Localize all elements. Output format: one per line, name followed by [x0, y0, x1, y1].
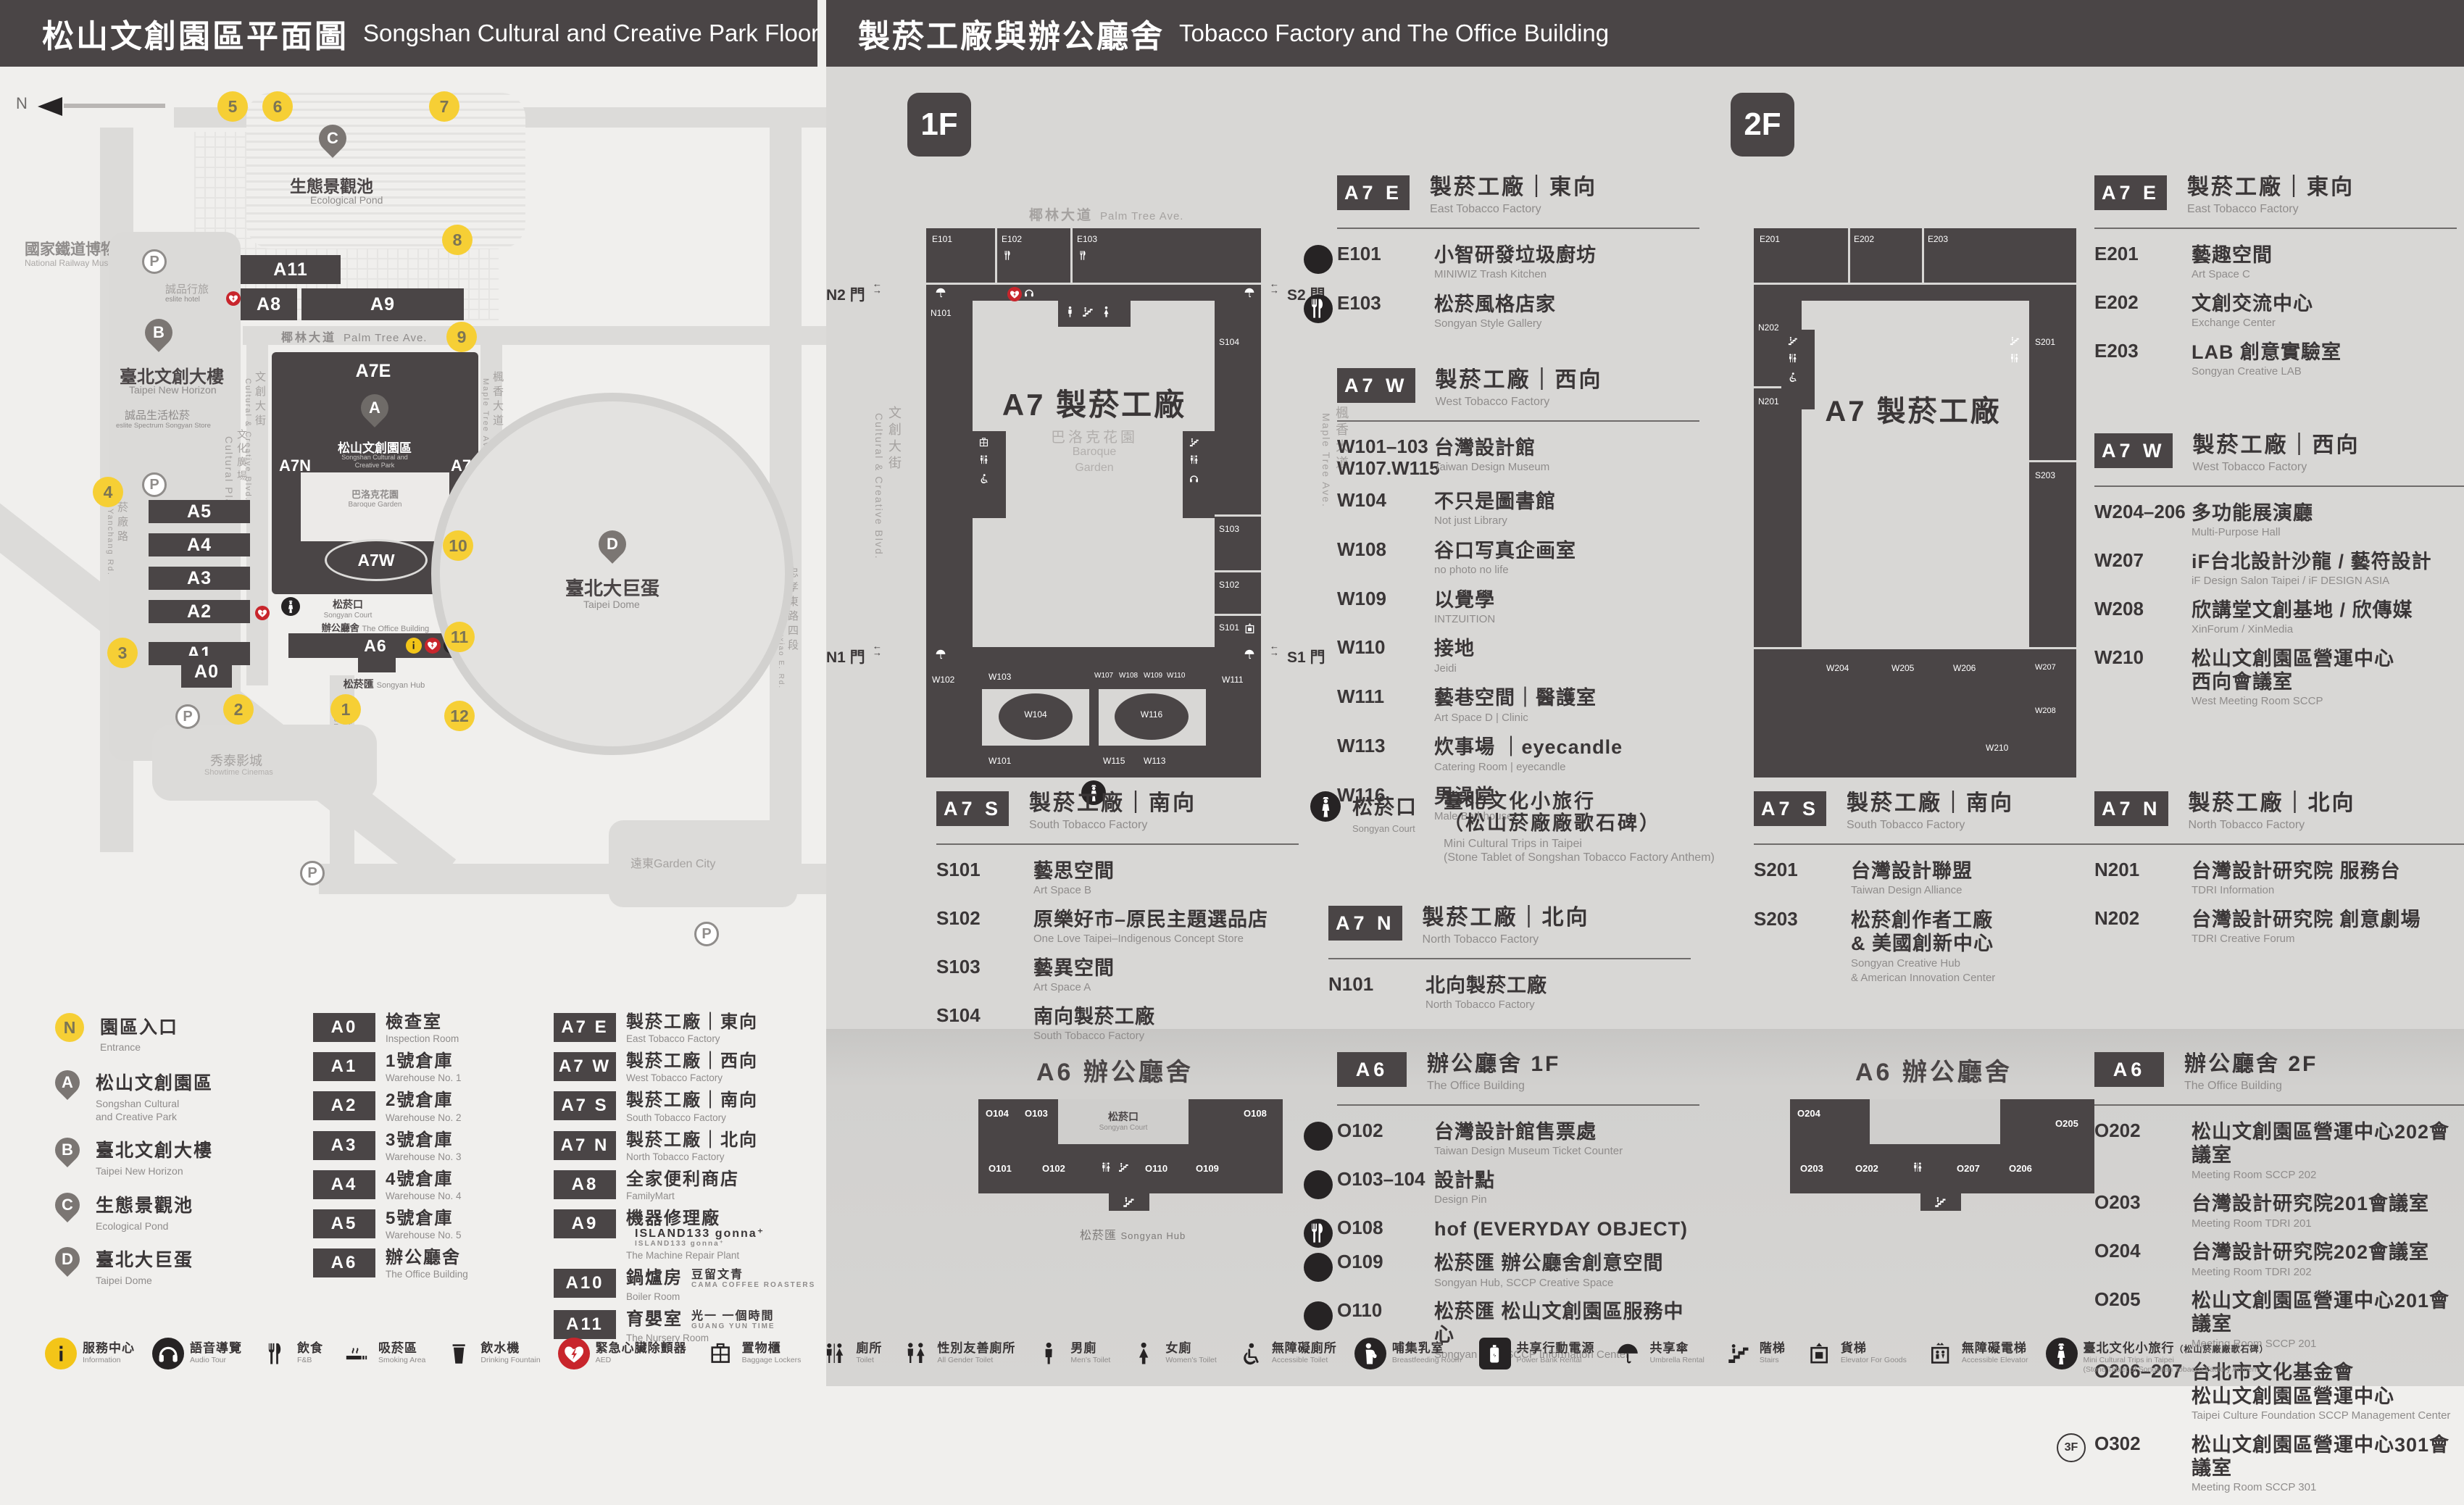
info-icon — [406, 638, 422, 654]
room-row: W109 以覺學INTZUITION — [1337, 588, 1699, 628]
section-2f-a7s: A7 S 製菸工廠｜南向 South Tobacco Factory S201 … — [1754, 791, 2094, 996]
right-title-en: Tobacco Factory and The Office Building — [1179, 20, 1609, 47]
building-legend-row: A7 N 製菸工廠｜北向 North Tobacco Factory — [499, 1131, 826, 1162]
legend-zh: 製菸工廠｜西向 — [626, 1052, 767, 1070]
room-row: S201 台灣設計聯盟Taiwan Design Alliance — [1754, 859, 2094, 899]
stairs-icon — [1081, 306, 1094, 318]
service-zh: 飲水機 — [480, 1338, 540, 1356]
service-item: 飲食 F&B — [259, 1338, 323, 1375]
room-label: N202 — [1758, 322, 1779, 333]
room-label: W207 — [2035, 663, 2056, 672]
legend-icon — [284, 1055, 306, 1077]
north-corridor-2f — [1754, 285, 2076, 301]
service-item: 無障礙電梯 Accessible Elevator — [1924, 1338, 2028, 1375]
cultural-blvd-label: 文創大街Cultural & Creative Blvd. — [244, 371, 267, 501]
room-label: W104 — [999, 709, 1073, 720]
divider — [1754, 843, 2094, 845]
new-horizon-label-en: Taipei New Horizon — [129, 384, 217, 396]
room-row: S104 南向製菸工廠South Tobacco Factory — [936, 1005, 1299, 1043]
garden-city-label: 遠東Garden City — [630, 854, 715, 871]
room-row: W110 接地Jeidi — [1337, 637, 1699, 676]
service-icon — [558, 1338, 590, 1369]
service-item: 吸菸區 Smoking Area — [341, 1338, 425, 1375]
legend-en: The Office Building — [386, 1269, 468, 1280]
room-label: N201 — [1758, 396, 1779, 407]
legend-icon — [525, 1173, 546, 1195]
legend-badge: A1 — [313, 1052, 375, 1081]
showtime-label-en: Showtime Cinemas — [204, 768, 273, 777]
room-row: S102 原樂好市–原民主題選品店One Love Taipei–Indigen… — [936, 908, 1299, 946]
room-label: W210 — [1986, 743, 2008, 753]
building-a4: A4 — [149, 533, 250, 556]
room-row: O203 台灣設計研究院201會議室Meeting Room TDRI 201 — [2094, 1192, 2464, 1230]
room-label: W101 — [988, 756, 1011, 766]
entrance-7: 7 — [429, 91, 459, 122]
legend-icon — [474, 1016, 496, 1038]
a6-stairs-stub — [358, 658, 396, 672]
legend-en: South Tobacco Factory — [626, 1112, 767, 1123]
legend-zh: 製菸工廠｜北向 — [626, 1131, 767, 1149]
entrance-4: 4 — [93, 477, 123, 507]
room-row: S101 藝思空間Art Space B — [936, 859, 1299, 898]
palm-ave-label: 椰林大道Palm Tree Ave. — [281, 328, 427, 345]
service-en: Stairs — [1760, 1356, 1786, 1365]
legend-badge: A7 N — [554, 1131, 616, 1160]
a7s-wing — [1215, 301, 1261, 647]
room-row: E202 文創交流中心Exchange Center — [2094, 292, 2457, 330]
room-label: W116 — [1115, 709, 1189, 720]
parking-icon: P — [694, 922, 719, 946]
pin-label-en: Taipei Dome — [96, 1274, 193, 1287]
room-label: E203 — [1928, 234, 1948, 244]
room-list: S201 台灣設計聯盟Taiwan Design Alliance S203 松… — [1754, 859, 2094, 985]
service-en: Power Bank Rental — [1517, 1356, 1595, 1365]
room-icon — [1304, 1122, 1333, 1151]
compass-arrow-icon — [38, 97, 62, 116]
legend-zh: 機器修理廠ISLAND133 gonna⁺ISLAND133 gonna⁺ — [626, 1209, 826, 1248]
room-row: O103–104 設計點Design Pin — [1337, 1169, 1699, 1207]
service-zh: 廁所 — [856, 1338, 882, 1356]
badge-a7n-2f: A7 N — [2094, 791, 2168, 826]
room-row: W111 藝巷空間｜醫護室Art Space D | Clinic — [1337, 686, 1699, 725]
court-item: 臺北文化小旅行 — [1444, 791, 1715, 813]
room-list: E101 小智研發垃圾廚坊MINIWIZ Trash Kitchen E103 … — [1337, 243, 1699, 332]
room-label: O101 — [988, 1163, 1012, 1174]
room-row: O202 松山文創園區營運中心202會議室Meeting Room SCCP 2… — [2094, 1120, 2464, 1182]
section-2f-a7n: A7 N 製菸工廠｜北向 North Tobacco Factory N201 … — [2094, 791, 2464, 956]
section-title: 辦公廳舍 1F — [1427, 1052, 1560, 1076]
park-map: N 國家鐵道博物館 National Railway Museum C 生態景觀… — [0, 67, 826, 993]
service-zh: 無障礙電梯 — [1962, 1338, 2028, 1356]
building-a0: A0 — [181, 656, 232, 688]
legend-badge: A9 — [554, 1209, 616, 1238]
section-title-en: The Office Building — [2184, 1080, 2318, 1093]
badge-a7s: A7 S — [936, 791, 1009, 826]
right-panel-header: 製菸工廠與辦公廳舍 Tobacco Factory and The Office… — [826, 0, 2464, 67]
legend-en: Warehouse No. 5 — [386, 1230, 462, 1241]
service-zh: 臺北文化小旅行（松山菸廠廠歌石碑） — [2084, 1338, 2269, 1356]
service-item: 服務中心 Information — [45, 1338, 135, 1375]
room-label: O204 — [1797, 1108, 1820, 1119]
room-label: S103 — [1219, 524, 1239, 534]
room-label: O110 — [1145, 1163, 1168, 1174]
parking-icon: P — [300, 861, 325, 885]
badge-a7n: A7 N — [1328, 906, 1402, 941]
legend-icons — [255, 1209, 306, 1212]
legend-zh: 製菸工廠｜東向 — [626, 1013, 767, 1031]
room-label: W113 — [1144, 756, 1165, 766]
pin-label-en: Taipei New Horizon — [96, 1164, 213, 1177]
a6-2f-plan-title: A6 辦公廳舍 — [1855, 1052, 2013, 1088]
service-en: Elevator For Goods — [1841, 1356, 1907, 1365]
building-legend-row: A4 4號倉庫 Warehouse No. 4 — [255, 1170, 499, 1201]
section-title: 製菸工廠｜東向 — [2187, 175, 2355, 199]
service-icon — [2046, 1338, 2078, 1369]
room-row: O108 hof (EVERYDAY OBJECT) — [1337, 1217, 1699, 1241]
room-label: W115 — [1103, 756, 1125, 766]
room-label: O108 — [1244, 1108, 1267, 1119]
room-label: N101 — [931, 308, 952, 318]
pond-label-en: Ecological Pond — [310, 194, 383, 206]
service-zh: 語音導覽 — [190, 1338, 242, 1356]
building-legend-row: A6 辦公廳舍 The Office Building — [255, 1248, 499, 1280]
a7n-wing — [926, 301, 973, 647]
service-zh: 共享行動電源 — [1517, 1338, 1595, 1356]
dome-label: 臺北大巨蛋 — [554, 574, 670, 601]
entrance-5: 5 — [217, 91, 248, 122]
room-label: W107 — [1094, 672, 1113, 680]
legend-en: The Machine Repair Plant — [626, 1250, 826, 1261]
service-zh: 吸菸區 — [378, 1338, 425, 1356]
pin-label: 松山文創園區 — [96, 1069, 213, 1095]
service-icon — [152, 1338, 184, 1369]
entrance-label-en: Entrance — [100, 1041, 178, 1053]
room-list: W101–103W107.W115 台灣設計館Taiwan Design Mus… — [1337, 436, 1699, 824]
legend-icons — [255, 1170, 306, 1173]
divider — [1337, 228, 1699, 229]
court-title-en: Songyan Court — [1352, 823, 1432, 834]
legend-badge: A7 S — [554, 1091, 616, 1120]
room-icon — [1304, 294, 1333, 323]
service-item: 緊急心臟除顫器 AED — [558, 1338, 687, 1375]
legend-en: North Tobacco Factory — [626, 1151, 767, 1162]
songyan-hub-label: 松菸匯 Songyan Hub — [1080, 1225, 1186, 1243]
legend-en: Warehouse No. 4 — [386, 1191, 462, 1201]
room-row: E103 松菸風格店家Songyan Style Gallery — [1337, 293, 1699, 332]
service-icon — [1234, 1338, 1266, 1369]
floor-1f-badge: 1F — [907, 93, 971, 157]
room-row: S103 藝異空間Art Space A — [936, 956, 1299, 995]
a6-1f-plan: 松菸口Songyan Court O104 O103 O108 O101 O10… — [964, 1091, 1297, 1264]
building-a9: A9 — [301, 288, 464, 320]
section-a6-2f: A6 辦公廳舍 2F The Office Building O202 松山文創… — [2094, 1052, 2464, 1505]
cultural-blvd-label-1f: 文創大街Cultural & Creative Blvd. — [873, 406, 904, 560]
badge-a7e: A7 E — [1337, 175, 1410, 210]
service-icon — [45, 1338, 77, 1369]
dome-label-en: Taipei Dome — [583, 599, 640, 610]
section-a6-1f: A6 辦公廳舍 1F The Office Building O102 台灣設計… — [1337, 1052, 1699, 1372]
room-label: W110 — [1167, 672, 1185, 680]
section-title-en: North Tobacco Factory — [1423, 933, 1590, 946]
north-corridor — [926, 285, 1261, 301]
service-en: Breastfeeding Room — [1392, 1356, 1462, 1365]
section-title-en: South Tobacco Factory — [1029, 819, 1196, 832]
service-item: 階梯 Stairs — [1722, 1338, 1786, 1375]
badge-a7s-2f: A7 S — [1754, 791, 1826, 826]
room-row: 3F O302 松山文創園區營運中心301會議室Meeting Room SCC… — [2094, 1433, 2464, 1495]
service-en: Baggage Lockers — [742, 1356, 802, 1365]
a7w-wing-2f — [1754, 647, 2076, 777]
eslite-hotel-label-en: eslite hotel — [165, 296, 200, 304]
section-title-en: The Office Building — [1427, 1080, 1560, 1093]
entrance-2: 2 — [223, 694, 254, 725]
room-row: E203 LAB 創意實驗室Songyan Creative LAB — [2094, 341, 2457, 379]
legend-icons — [499, 1013, 546, 1038]
room-label: O102 — [1042, 1163, 1065, 1174]
legend-zh: 1號倉庫 — [386, 1052, 462, 1070]
section-title-en: West Tobacco Factory — [1436, 396, 1603, 409]
legend-icons — [255, 1091, 306, 1116]
building-legend-col1: A0 檢查室 Inspection Room A1 1號倉庫 Warehouse… — [255, 1013, 499, 1288]
umbrella-icon — [935, 649, 946, 660]
showtime-block — [152, 725, 377, 801]
court-item-en2: (Stone Tablet of Songshan Tobacco Factor… — [1444, 851, 1715, 864]
entrance-3: 3 — [107, 638, 138, 668]
fnb-icon — [1002, 250, 1013, 261]
legend-icon — [525, 1212, 546, 1234]
building-legend-row: A0 檢查室 Inspection Room — [255, 1013, 499, 1044]
stairs-icon — [2009, 335, 2020, 346]
legend-icons — [499, 1131, 546, 1156]
room-list: E201 藝趣空間Art Space C E202 文創交流中心Exchange… — [2094, 243, 2457, 379]
a6-2f-plan: O204 O205 O203 O202 O207 O206 — [1776, 1091, 2109, 1264]
section-songyan-court: 松菸口 Songyan Court 臺北文化小旅行 （松山菸廠廠歌石碑） Min… — [1310, 791, 1716, 864]
legend-icon — [499, 1055, 521, 1077]
room-list: O202 松山文創園區營運中心202會議室Meeting Room SCCP 2… — [2094, 1120, 2464, 1495]
floor-prefix-badge: 3F — [2057, 1433, 2086, 1462]
service-icon — [341, 1338, 372, 1369]
service-icon — [818, 1338, 850, 1369]
legend-icon — [259, 1251, 280, 1273]
legend-zh: 3號倉庫 — [386, 1131, 462, 1149]
entrance-badge: N — [55, 1013, 84, 1042]
pin-icon: A — [50, 1065, 85, 1100]
legend-icons — [255, 1052, 306, 1077]
section-title: 製菸工廠｜南向 — [1847, 791, 2014, 815]
room-label: S101 — [1219, 622, 1239, 633]
entrance-label: 園區入口 — [100, 1013, 178, 1039]
room-label: O203 — [1800, 1163, 1823, 1174]
aed-icon — [255, 606, 270, 620]
service-icon — [259, 1338, 291, 1369]
room-row: S203 松菸創作者工廠& 美國創新中心Songyan Creative Hub… — [1754, 909, 2094, 985]
service-icon — [899, 1338, 931, 1369]
room-label: E202 — [1854, 234, 1874, 244]
section-2f-a7w: A7 W 製菸工廠｜西向 West Tobacco Factory W204–2… — [2094, 433, 2464, 719]
floor-plan-2f: E201 E202 E203 N202 N201 S201 S203 A7 製菸… — [1754, 156, 2102, 793]
badge-a7w-2f: A7 W — [2094, 433, 2173, 468]
room-list: O102 台灣設計館售票處Taiwan Design Museum Ticket… — [1337, 1120, 1699, 1362]
aed-icon — [1007, 287, 1022, 301]
room-label: O205 — [2055, 1118, 2078, 1129]
compass-n-label: N — [16, 94, 28, 112]
mens-toilet-icon — [1064, 306, 1076, 318]
legend-zh: 製菸工廠｜南向 — [626, 1091, 767, 1109]
toilet-icon — [1912, 1162, 1923, 1173]
service-item: 置物櫃 Baggage Lockers — [704, 1338, 802, 1375]
service-item: 廁所 Toilet — [818, 1338, 882, 1375]
service-zh: 置物櫃 — [742, 1338, 802, 1356]
stairs-icon — [1787, 335, 1798, 346]
toilet-icon — [1787, 353, 1798, 364]
eslite-hotel-label: 誠品行旅 — [165, 281, 209, 296]
entrance-11: 11 — [444, 622, 475, 652]
building-legend-col2: A7 E 製菸工廠｜東向 East Tobacco Factory A7 W 製… — [499, 1013, 826, 1351]
legend-icons — [499, 1310, 546, 1335]
room-row: E101 小智研發垃圾廚坊MINIWIZ Trash Kitchen — [1337, 243, 1699, 283]
service-en: Smoking Area — [378, 1356, 425, 1365]
baroque-garden-label: 巴洛克花園Baroque Garden — [330, 487, 420, 509]
room-list: N201 台灣設計研究院 服務台TDRI Information N202 台灣… — [2094, 859, 2464, 946]
gate-s2: ←→ — [1270, 280, 1279, 293]
service-item: 無障礙廁所 Accessible Toilet — [1234, 1338, 1337, 1375]
legend-icon — [525, 1313, 546, 1335]
legend-en: West Tobacco Factory — [626, 1072, 767, 1083]
service-en: Audio Tour — [190, 1356, 242, 1365]
room-label: O207 — [1957, 1163, 1980, 1174]
service-item: 貨梯 Elevator For Goods — [1803, 1338, 1907, 1375]
womens-toilet-icon — [1100, 306, 1112, 318]
stairs-icon — [1122, 1196, 1135, 1209]
service-en: Men's Toilet — [1070, 1356, 1110, 1365]
pin-legend-row: A 松山文創園區 Songshan Culturaland Creative P… — [55, 1069, 251, 1123]
building-legend-row: A8 全家便利商店 FamilyMart — [499, 1170, 826, 1201]
building-legend-row: A2 2號倉庫 Warehouse No. 2 — [255, 1091, 499, 1122]
badge-a6: A6 — [1337, 1052, 1407, 1087]
section-title-en: South Tobacco Factory — [1847, 819, 2014, 832]
legend-icon — [525, 1094, 546, 1116]
eslite-mall-label-en: eslite Spectrum Songyan Store — [116, 422, 211, 430]
section-title-en: North Tobacco Factory — [2189, 819, 2356, 832]
eslite-mall-label: 誠品生活松菸 — [125, 407, 190, 422]
floor-2f-badge: 2F — [1731, 93, 1794, 157]
entrance-9: 9 — [446, 322, 477, 352]
baroque-label-zh: 巴洛克花園 — [986, 425, 1203, 446]
umbrella-icon — [1244, 287, 1255, 299]
a7-center-label-2f: A7 製菸工廠 — [1805, 388, 2022, 430]
room-label: W109 — [1144, 672, 1162, 680]
accessible-toilet-icon — [978, 473, 989, 484]
legend-badge: A7 E — [554, 1013, 616, 1042]
room-row: W101–103W107.W115 台灣設計館Taiwan Design Mus… — [1337, 436, 1699, 480]
building-a2: A2 — [149, 600, 250, 623]
toilet-icon — [1100, 1162, 1112, 1173]
legend-en: Warehouse No. 1 — [386, 1072, 462, 1083]
building-a3: A3 — [149, 567, 250, 590]
pin-label: 生態景觀池 — [96, 1191, 193, 1217]
legend-icons — [499, 1269, 546, 1293]
songyan-court-map-label: 松菸口Songyan Court — [304, 597, 391, 620]
gate-n2: ←→ — [873, 280, 882, 293]
building-legend-row: A5 5號倉庫 Warehouse No. 5 — [255, 1209, 499, 1241]
divider — [2094, 1104, 2464, 1106]
room-label: W102 — [932, 675, 954, 685]
service-zh: 緊急心臟除顫器 — [596, 1338, 687, 1356]
room-row: N202 台灣設計研究院 創意劇場TDRI Creative Forum — [2094, 908, 2464, 946]
service-item: 臺北文化小旅行（松山菸廠廠歌石碑） Mini Cultural Trips in… — [2046, 1338, 2269, 1375]
entrance-12: 12 — [444, 701, 475, 731]
room-list: W204–206 多功能展演廳Multi-Purpose Hall W207 i… — [2094, 501, 2464, 709]
section-title: 製菸工廠｜東向 — [1430, 175, 1597, 199]
legend-zh: 2號倉庫 — [386, 1091, 462, 1109]
a7e-map-label: A7E — [330, 361, 417, 382]
legend-badge: A5 — [313, 1209, 375, 1238]
parking-icon: P — [175, 704, 200, 729]
section-title-en: West Tobacco Factory — [2193, 461, 2360, 474]
building-legend-row: A7 S 製菸工廠｜南向 South Tobacco Factory — [499, 1091, 826, 1122]
service-item: 性別友善廁所 All Gender Toilet — [899, 1338, 1015, 1375]
room-label: W111 — [1222, 675, 1244, 685]
legend-icons — [499, 1052, 546, 1077]
legend-icon — [525, 1016, 546, 1038]
section-title: 製菸工廠｜西向 — [1436, 368, 1603, 392]
legend-zh: 4號倉庫 — [386, 1170, 462, 1188]
service-zh: 女廁 — [1165, 1338, 1216, 1356]
audio-tour-icon — [1189, 473, 1199, 484]
divider — [2094, 485, 2464, 487]
service-icon — [1033, 1338, 1065, 1369]
room-row: W210 松山文創園區營運中心西向會議室West Meeting Room SC… — [2094, 647, 2464, 709]
section-title: 製菸工廠｜北向 — [2189, 791, 2356, 815]
legend-zh: 育嬰室光一 一個時間GUANG YUN TIME — [626, 1310, 775, 1330]
legend-icon — [525, 1272, 546, 1293]
section-title: 辦公廳舍 2F — [2184, 1052, 2318, 1076]
room-row: O204 台灣設計研究院202會議室Meeting Room TDRI 202 — [2094, 1241, 2464, 1279]
service-item: 共享行動電源 Power Bank Rental — [1479, 1338, 1595, 1375]
compass-tail — [64, 104, 165, 108]
mini-trips-icon — [1310, 791, 1341, 822]
service-item: 哺集乳室 Breastfeeding Room — [1354, 1338, 1462, 1375]
legend-zh: 辦公廳舍 — [386, 1248, 468, 1267]
legend-zh: 鍋爐房豆留文青CAMA COFFEE ROASTERS — [626, 1269, 815, 1289]
badge-a6-2f: A6 — [2094, 1052, 2164, 1087]
room-label: S102 — [1219, 580, 1239, 590]
room-label: W205 — [1891, 663, 1914, 673]
section-1f-a7w: A7 W 製菸工廠｜西向 West Tobacco Factory W101–1… — [1337, 368, 1699, 834]
divider — [1337, 420, 1699, 422]
room-label: W208 — [2035, 706, 2056, 715]
legend-icon — [474, 1173, 496, 1195]
court-title: 松菸口 — [1352, 791, 1432, 820]
service-zh: 性別友善廁所 — [937, 1338, 1015, 1356]
pin-label-en: Songshan Culturaland Creative Park — [96, 1097, 213, 1123]
room-label: W108 — [1119, 672, 1138, 680]
service-zh: 共享傘 — [1650, 1338, 1705, 1356]
entrance-1: 1 — [330, 694, 361, 725]
service-item: 共享傘 Umbrella Rental — [1612, 1338, 1705, 1375]
legend-icons — [255, 1013, 306, 1016]
section-title-en: East Tobacco Factory — [2187, 203, 2355, 216]
gate-n1-label: N1 門 — [826, 646, 865, 667]
service-icon — [1128, 1338, 1160, 1369]
room-icon — [1304, 1301, 1333, 1330]
service-en: Women's Toilet — [1165, 1356, 1216, 1365]
a7n-map-label: A7N — [279, 458, 301, 474]
divider — [1328, 958, 1691, 959]
left-title-en: Songshan Cultural and Creative Park Floo… — [363, 20, 873, 47]
building-a8: A8 — [241, 288, 297, 320]
room-row: O109 松菸匯 辦公廳舍創意空間Songyan Hub, SCCP Creat… — [1337, 1251, 1699, 1290]
